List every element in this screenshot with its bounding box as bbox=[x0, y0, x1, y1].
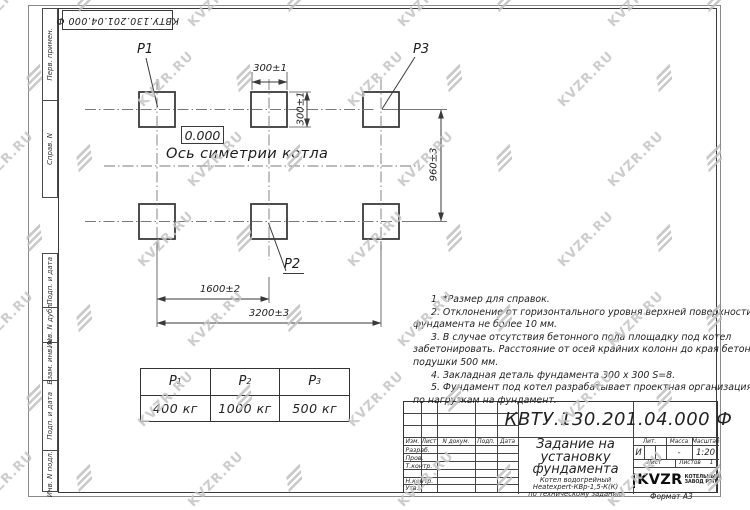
symmetry-axis-label: Ось симетрии котла bbox=[166, 146, 328, 162]
note-line: 2. Отклонение от горизонтального уровня … bbox=[413, 307, 731, 320]
centerlines bbox=[85, 79, 420, 260]
p-subscript: 3 bbox=[316, 377, 321, 386]
note-line: фундамента не более 10 мм. bbox=[413, 319, 731, 332]
drawing-lines bbox=[0, 0, 750, 500]
load-point-p3-label: P3 bbox=[413, 42, 429, 57]
loads-table-header: P1 bbox=[141, 369, 211, 395]
note-line: 3. В случае отсутствия бетонного пола пл… bbox=[413, 332, 731, 345]
note-line: 4. Закладная деталь фундамента 300 х 300… bbox=[413, 370, 731, 383]
note-line: 5. Фундамент под котел разрабатывает про… bbox=[413, 382, 731, 395]
drawing-sheet: { "designation": "КВТУ.130.201.04.000 Ф"… bbox=[0, 0, 750, 500]
dim-960: 960±3 bbox=[429, 147, 440, 183]
note-line: 1. *Размер для справок. bbox=[413, 294, 731, 307]
p-symbol: P bbox=[239, 374, 247, 389]
dim-1600: 1600±2 bbox=[195, 284, 245, 295]
loads-table-value-row: 400 кг 1000 кг 500 кг bbox=[141, 396, 349, 422]
loads-table-header-row: P1 P2 P3 bbox=[141, 369, 349, 396]
loads-table-value: 400 кг bbox=[141, 396, 211, 422]
technical-notes: 1. *Размер для справок. 2. Отклонение от… bbox=[413, 294, 731, 407]
dim-3200: 3200±3 bbox=[244, 308, 294, 319]
load-point-p2-label: P2 bbox=[283, 257, 304, 274]
load-point-p1-label: P1 bbox=[137, 42, 153, 57]
p-symbol: P bbox=[169, 374, 177, 389]
p-subscript: 1 bbox=[177, 377, 182, 386]
p-symbol: P bbox=[308, 374, 316, 389]
loads-table-header: P2 bbox=[211, 369, 281, 395]
note-line: забетонировать. Расстояние от осей крайн… bbox=[413, 344, 731, 357]
dim-300-top: 300±1 bbox=[250, 63, 290, 74]
leader-p1 bbox=[146, 58, 158, 107]
loads-table-value: 1000 кг bbox=[211, 396, 281, 422]
note-line: по нагрузкам на фундамент. bbox=[413, 395, 731, 408]
note-line: подушки 500 мм. bbox=[413, 357, 731, 370]
dim-300-right: 300±1 bbox=[296, 92, 307, 126]
zero-level-mark: 0.000 bbox=[181, 126, 224, 144]
loads-table-value: 500 кг bbox=[280, 396, 349, 422]
loads-table: P1 P2 P3 400 кг 1000 кг 500 кг bbox=[140, 368, 350, 422]
p-subscript: 2 bbox=[246, 377, 251, 386]
loads-table-header: P3 bbox=[280, 369, 349, 395]
